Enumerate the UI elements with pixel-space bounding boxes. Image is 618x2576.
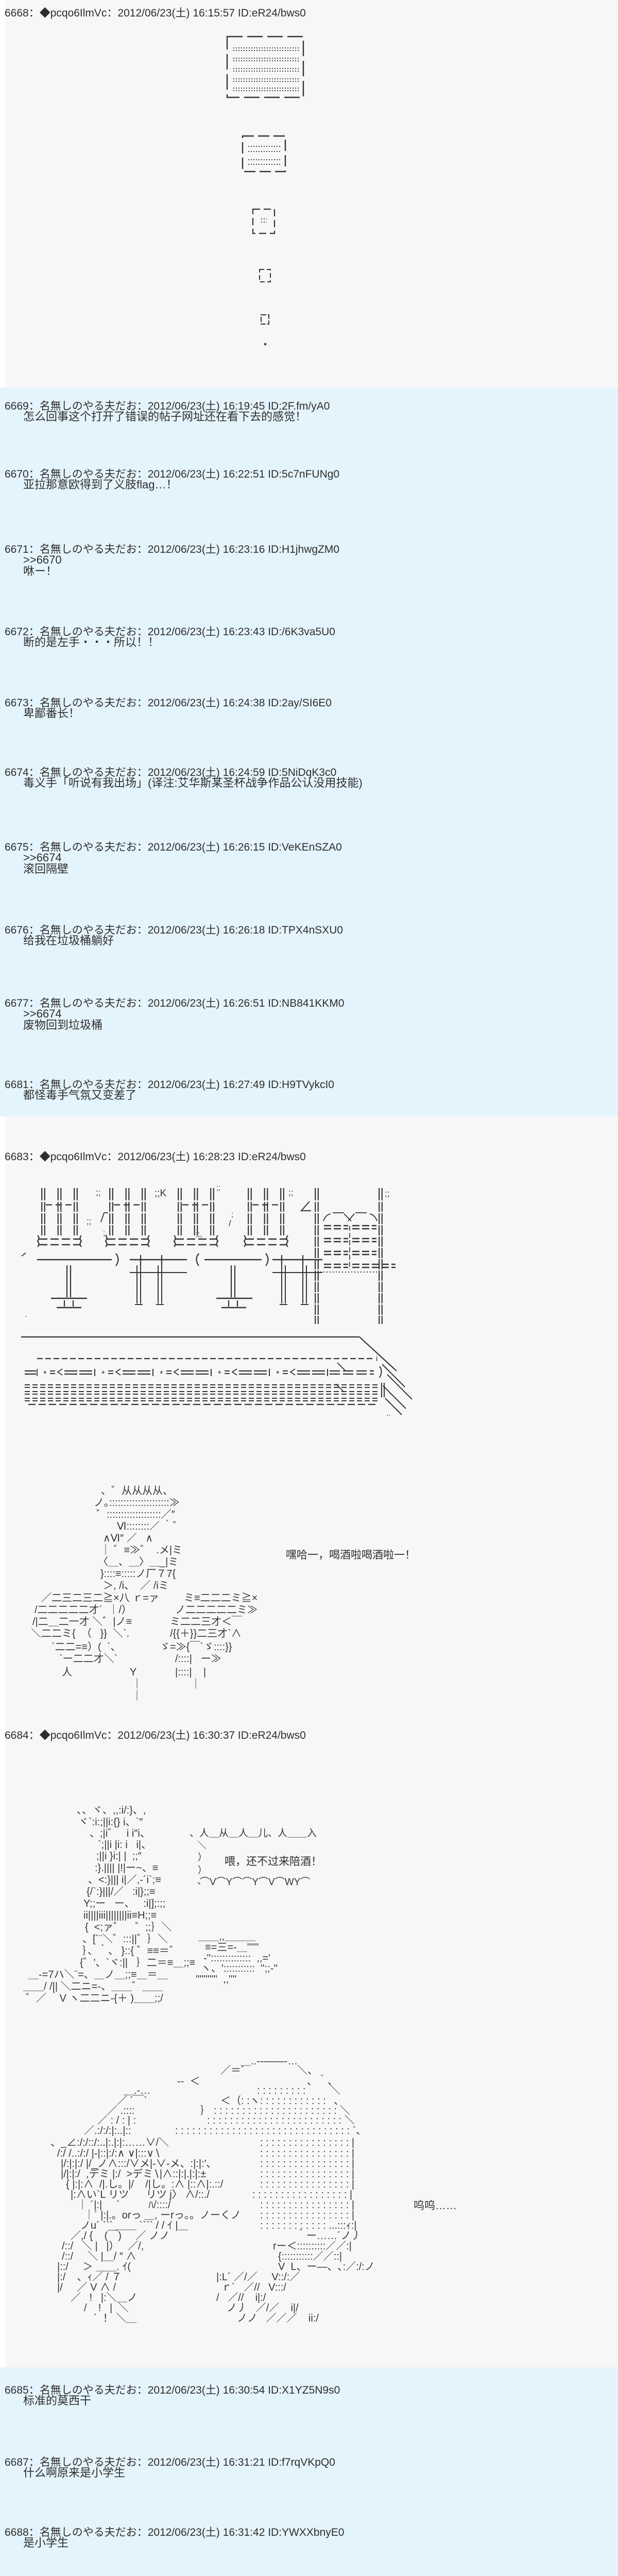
svg-text:*: * — [101, 1369, 105, 1379]
svg-text:;: ; — [231, 1210, 233, 1219]
svg-text:..: .. — [386, 1409, 390, 1418]
svg-text:;;,: ;;, — [196, 1230, 202, 1239]
svg-text:*: * — [218, 1369, 221, 1379]
svg-text:*: * — [43, 1369, 47, 1379]
svg-text:;;: ;; — [288, 1188, 293, 1197]
svg-text:.: . — [25, 1310, 27, 1319]
svg-text:/: / — [229, 1218, 231, 1228]
svg-text:;;: ;; — [87, 1216, 91, 1226]
svg-text:;;: ;; — [96, 1188, 100, 1197]
svg-text:*: * — [276, 1369, 280, 1379]
svg-text:;;: ;; — [385, 1189, 389, 1198]
svg-text:;,: ;, — [103, 1229, 107, 1238]
svg-text:;;: ;; — [216, 1183, 220, 1192]
svg-text:i: i — [376, 1354, 377, 1363]
svg-text:;;K: ;;K — [154, 1188, 167, 1199]
svg-text:*: * — [160, 1369, 163, 1379]
